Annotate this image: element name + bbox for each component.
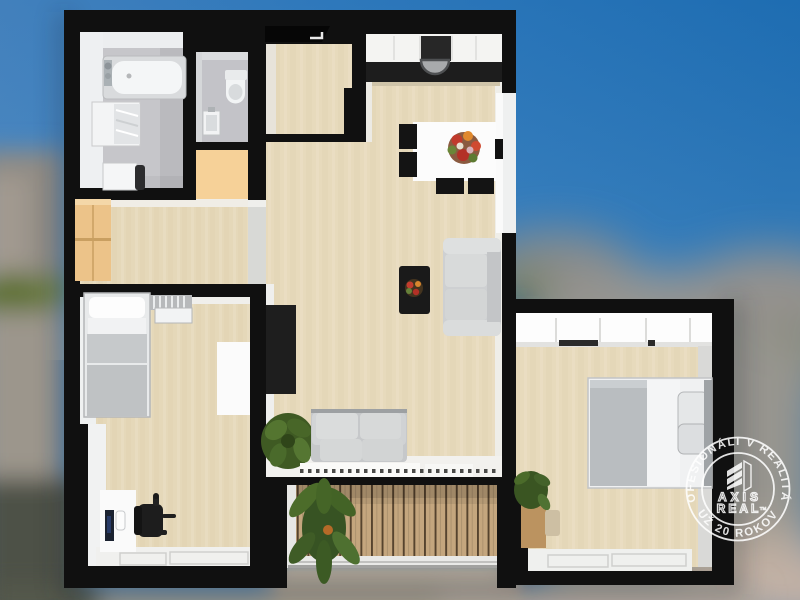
svg-text:REAL: REAL xyxy=(717,502,762,516)
svg-text:TM: TM xyxy=(760,506,767,511)
